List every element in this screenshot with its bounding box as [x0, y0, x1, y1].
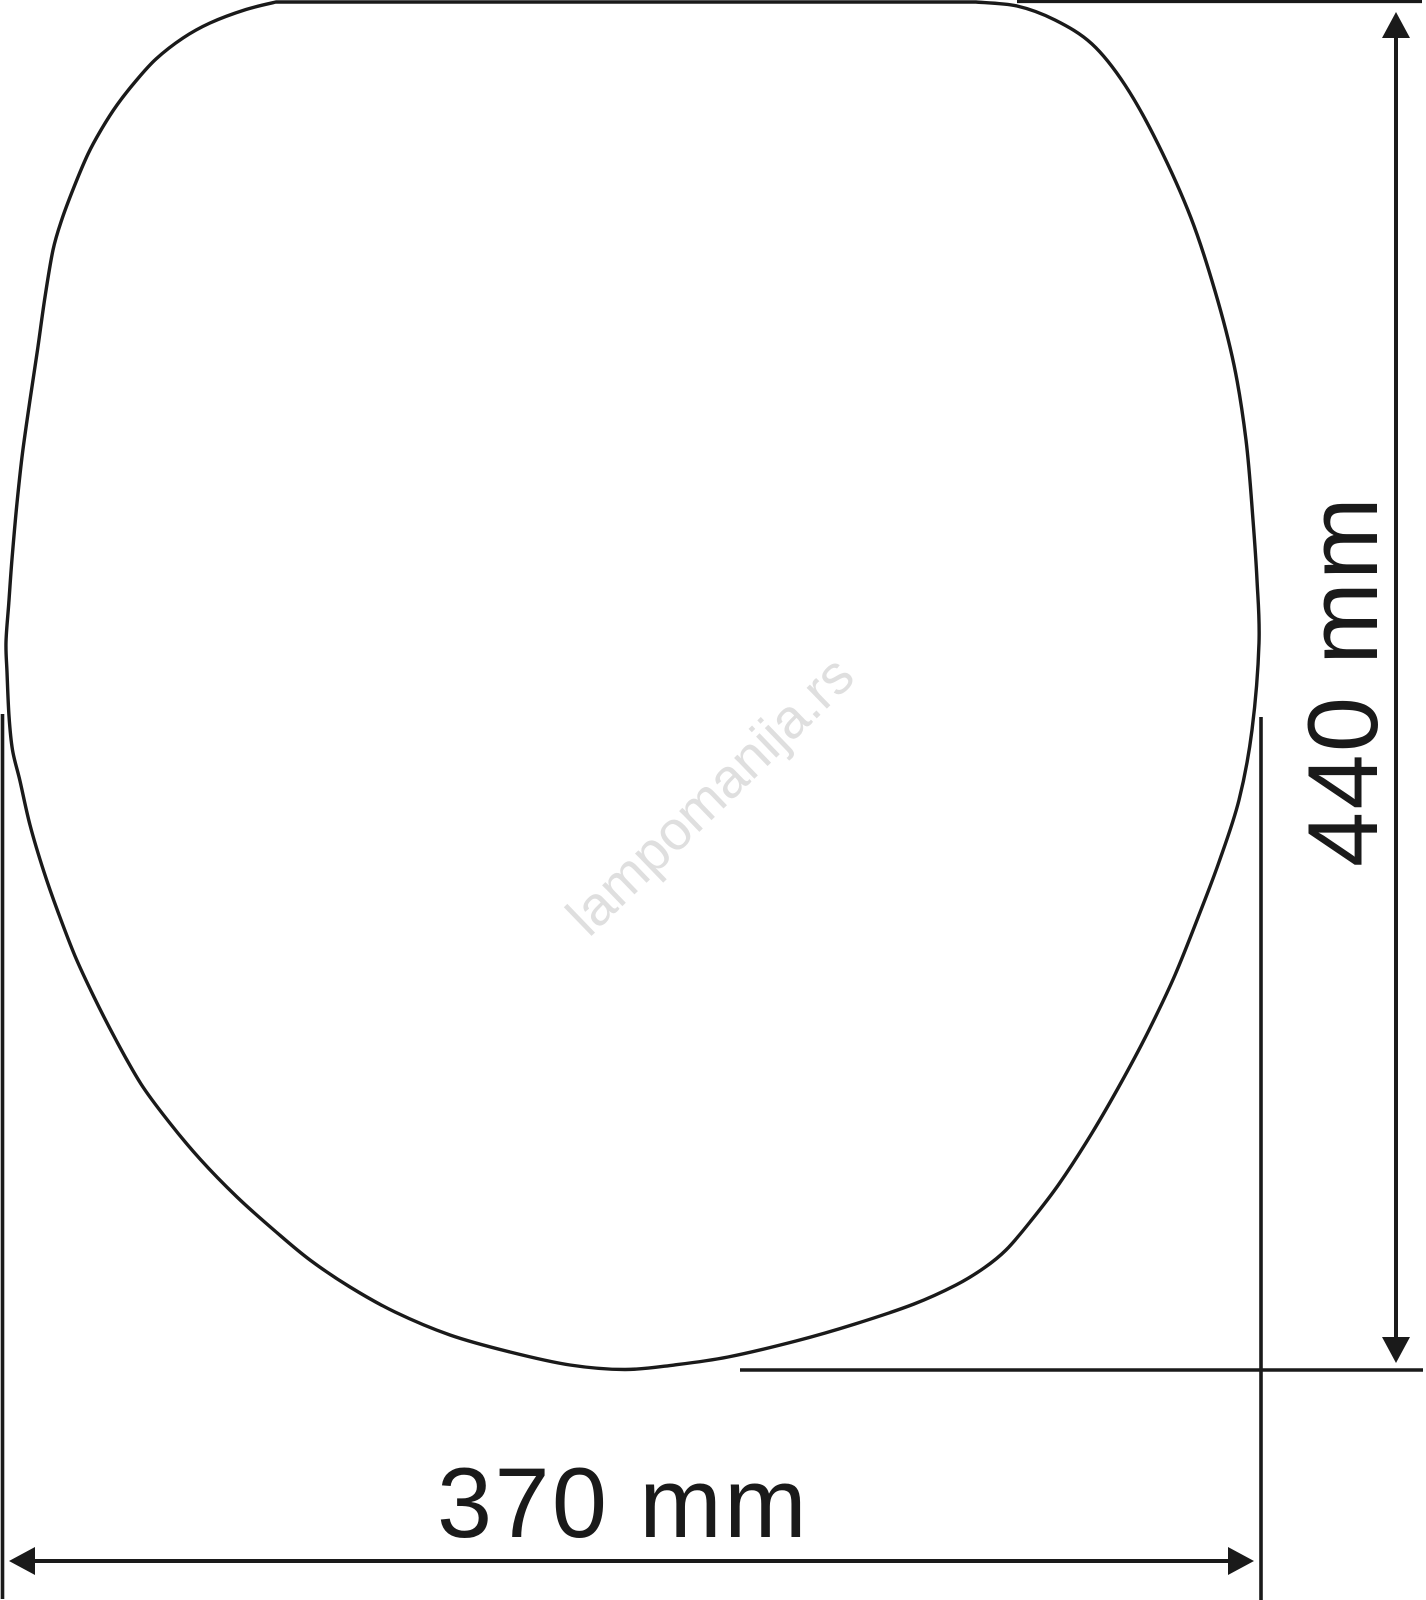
svg-text:440 mm: 440 mm: [1287, 495, 1398, 867]
svg-text:370 mm: 370 mm: [437, 1447, 809, 1558]
svg-text:lampomanija.rs: lampomanija.rs: [554, 644, 865, 948]
